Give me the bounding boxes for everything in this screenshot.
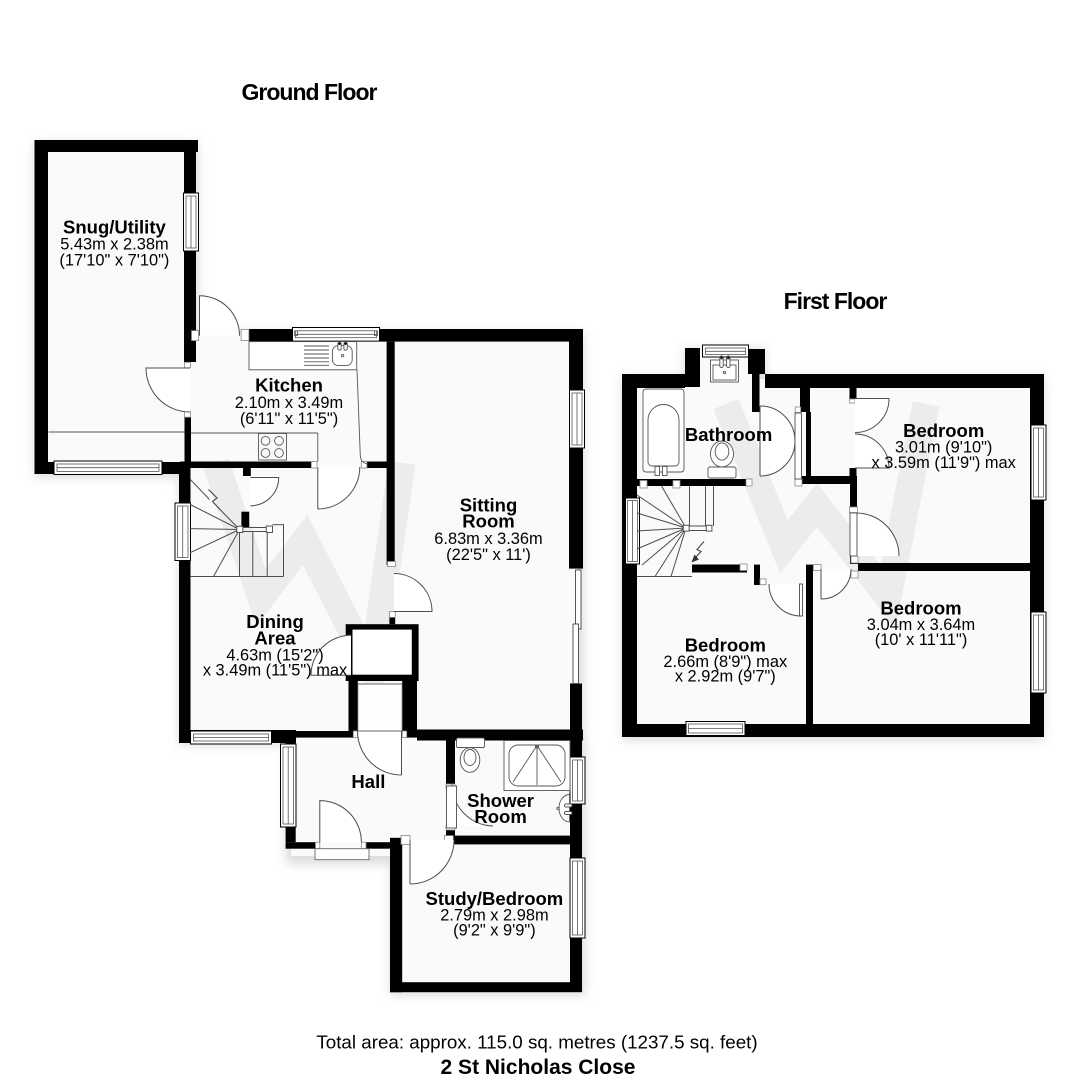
svg-text:x 2.92m (9'7"): x 2.92m (9'7") [675, 668, 776, 686]
svg-text:Room: Room [462, 511, 514, 532]
svg-text:Bathroom: Bathroom [685, 424, 772, 445]
svg-text:(17'10" x 7'10"): (17'10" x 7'10") [59, 252, 169, 270]
svg-text:(22'5" x 11'): (22'5" x 11') [446, 546, 531, 564]
svg-text:2 St Nicholas Close: 2 St Nicholas Close [441, 1056, 636, 1079]
svg-text:Total area: approx. 115.0 sq.: Total area: approx. 115.0 sq. metres (12… [316, 1032, 757, 1053]
svg-text:x 3.49m (11'5") max: x 3.49m (11'5") max [203, 662, 348, 680]
svg-text:(6'11" x 11'5"): (6'11" x 11'5") [240, 410, 338, 428]
svg-text:(10' x 11'11"): (10' x 11'11") [875, 631, 968, 649]
svg-text:Ground Floor: Ground Floor [242, 79, 378, 105]
svg-text:x 3.59m (11'9") max: x 3.59m (11'9") max [872, 454, 1017, 472]
svg-text:(9'2" x 9'9"): (9'2" x 9'9") [453, 922, 536, 940]
svg-text:First Floor: First Floor [784, 288, 888, 314]
svg-text:Hall: Hall [351, 771, 385, 792]
svg-text:Area: Area [254, 628, 296, 649]
svg-text:Snug/Utility: Snug/Utility [63, 217, 166, 238]
svg-text:Room: Room [474, 806, 526, 827]
svg-text:Kitchen: Kitchen [255, 375, 323, 396]
